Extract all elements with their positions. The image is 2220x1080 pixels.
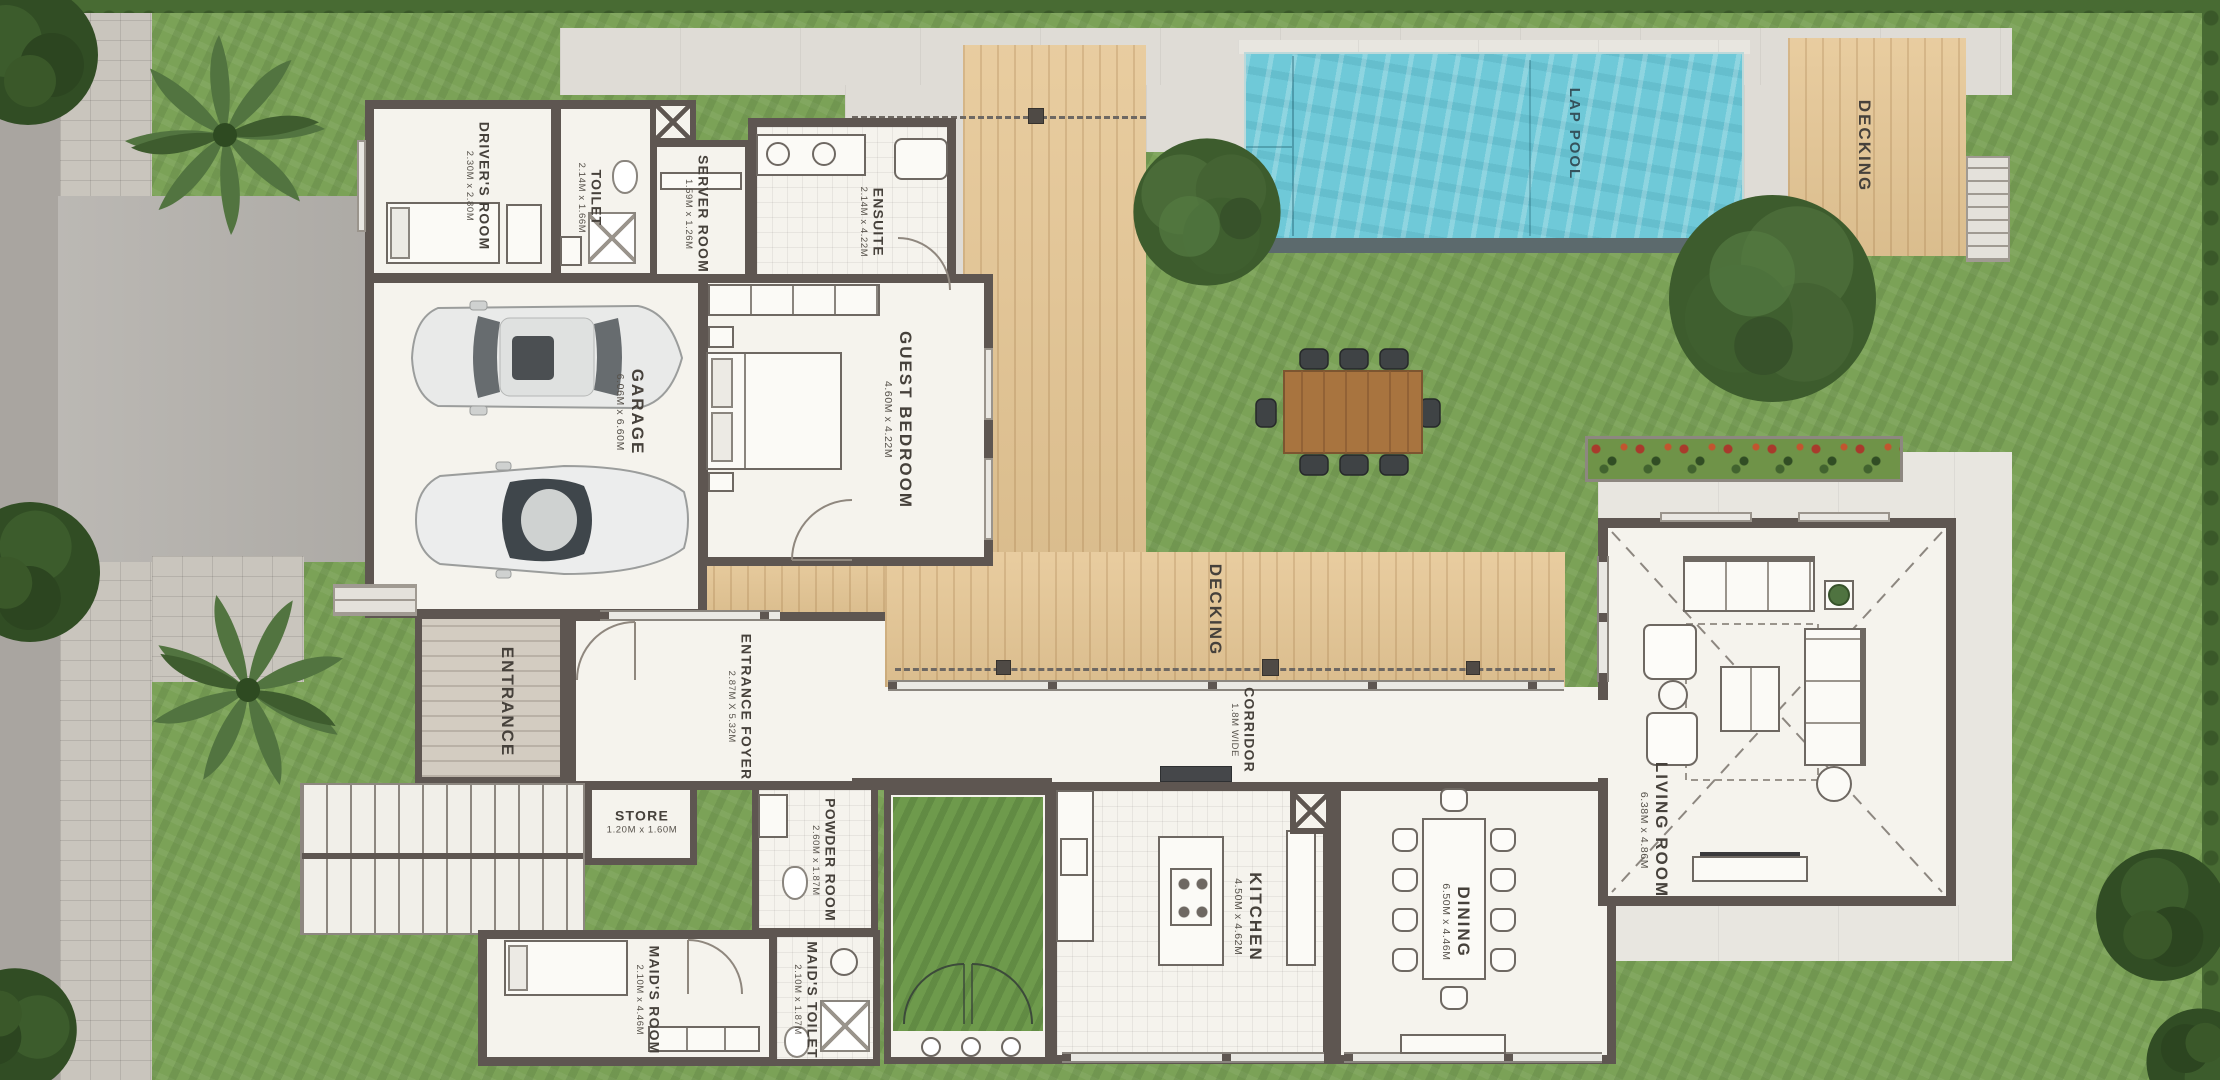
entrance-hall <box>415 612 567 784</box>
planter-pot <box>921 1037 941 1057</box>
door-arc-maid <box>686 938 744 996</box>
bathtub <box>894 138 948 180</box>
pool-step-line <box>1292 56 1294 236</box>
label-drivers-room: DRIVER'S ROOM 2.30M x 2.80M <box>463 122 494 251</box>
room-name: ENSUITE <box>869 187 887 258</box>
room-dims: 2.60M x 1.87M <box>809 798 821 922</box>
dining-chair <box>1490 828 1516 852</box>
bed-pillow <box>711 358 733 408</box>
guest-window <box>984 348 993 420</box>
room-name: GARAGE <box>626 369 648 456</box>
label-guest-bedroom: GUEST BEDROOM 4.60M x 4.22M <box>880 331 916 509</box>
room-name: MAID'S TOILET <box>803 941 821 1058</box>
deck-post <box>996 660 1011 675</box>
basin <box>812 142 836 166</box>
room-name: MAID'S ROOM <box>645 945 663 1054</box>
car-sports <box>412 460 694 580</box>
basin <box>766 142 790 166</box>
room-dims: 4.60M x 4.22M <box>880 331 894 509</box>
nightstand <box>708 326 734 348</box>
room-name: ENTRANCE <box>496 647 518 757</box>
tall-unit <box>1286 830 1316 966</box>
dining-chair <box>1490 868 1516 892</box>
room-dims: 4.50M x 4.62M <box>1230 872 1244 962</box>
dining-chair <box>1392 868 1418 892</box>
label-corridor: CORRIDOR 1.8M WIDE <box>1228 687 1259 773</box>
room-name: TOILET <box>587 163 605 234</box>
label-decking-pool: DECKING <box>1853 100 1875 192</box>
room-dims: 2.14M x 4.22M <box>857 187 869 258</box>
room-name: DINING <box>1452 883 1474 960</box>
sink <box>560 236 582 266</box>
room-name: KITCHEN <box>1244 872 1266 962</box>
console-table <box>1160 766 1232 782</box>
room-dims: 1.20M x 1.60M <box>607 825 678 837</box>
room-dims: 6.38M x 4.86M <box>1636 762 1650 898</box>
bed-pillow <box>390 207 410 259</box>
area-name: DECKING <box>1853 100 1875 192</box>
wc <box>782 866 808 900</box>
armchair <box>1643 624 1697 680</box>
label-server-room: SERVER ROOM 1.59M x 1.26M <box>682 155 713 273</box>
door-arc-guest <box>790 498 854 562</box>
label-dining: DINING 6.50M x 4.46M <box>1438 883 1474 960</box>
sofa-chaise <box>1804 628 1866 766</box>
label-lap-pool: LAP POOL <box>1564 88 1584 180</box>
bush <box>0 0 113 140</box>
label-living-room: LIVING ROOM 6.38M x 4.86M <box>1636 762 1672 898</box>
dining-chair <box>1490 948 1516 972</box>
label-kitchen: KITCHEN 4.50M x 4.62M <box>1230 872 1266 962</box>
dining-chair <box>1392 828 1418 852</box>
room-name: DRIVER'S ROOM <box>475 122 493 251</box>
side-table-round <box>1816 766 1852 802</box>
room-dims: 6.50M x 4.46M <box>1438 883 1452 960</box>
room-dims: 6.06M x 6.60M <box>612 369 626 456</box>
room-dims: 2.87M X 5.32M <box>725 634 737 781</box>
shower <box>820 1000 870 1052</box>
nightstand <box>708 472 734 492</box>
room-dims: 2.10M x 4.46M <box>633 945 645 1054</box>
label-toilet: TOILET 2.14M x 1.66M <box>575 163 606 234</box>
flower-bed <box>1585 436 1903 482</box>
palm-tree <box>138 580 358 800</box>
path-living-right <box>1954 452 2012 912</box>
label-maids-room: MAID'S ROOM 2.10M x 4.46M <box>633 945 664 1054</box>
area-name: DECKING <box>1204 564 1226 656</box>
bush <box>2082 835 2220 995</box>
area-name: LAP POOL <box>1564 88 1584 180</box>
basin <box>830 948 858 976</box>
wardrobe <box>708 284 880 316</box>
label-ensuite: ENSUITE 2.14M x 4.22M <box>857 187 888 258</box>
staircase <box>300 783 585 935</box>
room-name: ENTRANCE FOYER <box>737 634 755 781</box>
room-name: SERVER ROOM <box>694 155 712 273</box>
planter-pot <box>961 1037 981 1057</box>
stair-divider <box>302 853 583 859</box>
wc <box>612 160 638 194</box>
bed-pillow <box>508 945 528 991</box>
drivers-window <box>357 140 366 232</box>
deck-post <box>1262 659 1279 676</box>
pool-lane-line <box>1529 60 1531 236</box>
room-dims: 2.30M x 2.80M <box>463 122 475 251</box>
armchair <box>1646 712 1698 766</box>
door-arc-ensuite <box>896 236 952 292</box>
dining-chair <box>1440 986 1468 1010</box>
label-decking-center: DECKING <box>1204 564 1226 656</box>
bed-blanket-line <box>744 354 746 468</box>
label-maids-toilet: MAID'S TOILET 2.10M x 1.87M <box>791 941 822 1058</box>
coffee-table <box>1720 666 1780 732</box>
kitchen-sink <box>1060 838 1088 876</box>
palm-tree <box>115 25 335 245</box>
dining-chair <box>1392 908 1418 932</box>
planter-pot <box>1001 1037 1021 1057</box>
room-name: STORE <box>607 807 678 825</box>
stove <box>1170 868 1212 926</box>
dining-chair <box>1392 948 1418 972</box>
shaft-kitchen <box>1290 788 1332 834</box>
label-entrance-foyer: ENTRANCE FOYER 2.87M X 5.32M <box>725 634 756 781</box>
room-dims: 1.8M WIDE <box>1228 687 1240 773</box>
garden-tree <box>1660 186 1885 411</box>
dining-chair <box>1440 788 1468 812</box>
deck-post <box>1466 661 1480 675</box>
shaft-service <box>650 100 696 144</box>
deck-dash-line <box>895 668 1555 671</box>
room-dims: 2.14M x 1.66M <box>575 163 587 234</box>
hedge-top <box>0 0 2220 13</box>
bush <box>0 955 90 1080</box>
kitchen-glass-wall <box>1062 1052 1324 1063</box>
site-plan: DRIVER'S ROOM 2.30M x 2.80M TOILET 2.14M… <box>0 0 2220 1080</box>
tv <box>1700 852 1800 856</box>
room-dims: 2.10M x 1.87M <box>791 941 803 1058</box>
corridor-glass-wall <box>888 680 1564 691</box>
deck-post <box>1028 108 1044 124</box>
sideboard <box>1400 1034 1506 1054</box>
garden-tree <box>1127 132 1287 292</box>
path-living-bottom <box>1598 905 2012 961</box>
plant <box>1828 584 1850 606</box>
room-dims: 1.59M x 1.26M <box>682 155 694 273</box>
room-name: POWDER ROOM <box>821 798 839 922</box>
dining-chair <box>1490 908 1516 932</box>
room-name: CORRIDOR <box>1240 687 1258 773</box>
label-garage: GARAGE 6.06M x 6.60M <box>612 369 648 456</box>
sofa <box>1683 556 1815 612</box>
sink <box>758 794 788 838</box>
garden-steps <box>1966 156 2010 262</box>
bush <box>0 487 115 657</box>
room-name: GUEST BEDROOM <box>894 331 916 509</box>
bed-pillow <box>711 412 733 462</box>
label-powder-room: POWDER ROOM 2.60M x 1.87M <box>809 798 840 922</box>
door-arc-courtyard <box>902 962 1034 1026</box>
tv-console <box>1692 856 1808 882</box>
side-table-round <box>1658 680 1688 710</box>
room-name: LIVING ROOM <box>1650 762 1672 898</box>
label-store: STORE 1.20M x 1.60M <box>607 807 678 838</box>
outdoor-dining-set <box>1248 345 1448 480</box>
cabinet <box>648 1026 760 1052</box>
door-arc-entrance <box>575 620 637 682</box>
label-entrance: ENTRANCE <box>496 647 518 757</box>
guest-window <box>984 458 993 540</box>
bush <box>2135 997 2220 1080</box>
wardrobe <box>506 204 542 264</box>
